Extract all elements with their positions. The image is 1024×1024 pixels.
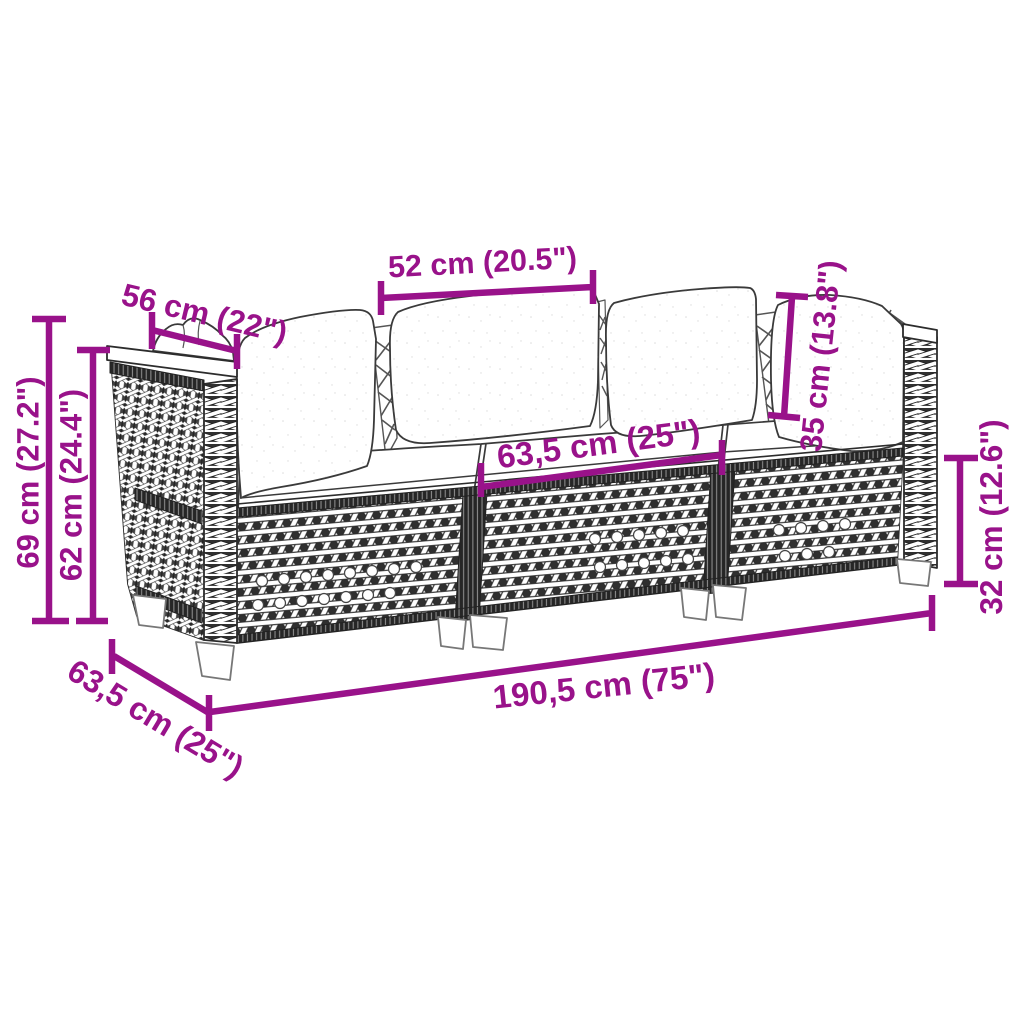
svg-text:69 cm (27.2"): 69 cm (27.2") <box>11 376 46 568</box>
svg-text:32 cm (12.6"): 32 cm (12.6") <box>973 419 1009 614</box>
svg-text:62 cm (24.4"): 62 cm (24.4") <box>54 389 89 581</box>
